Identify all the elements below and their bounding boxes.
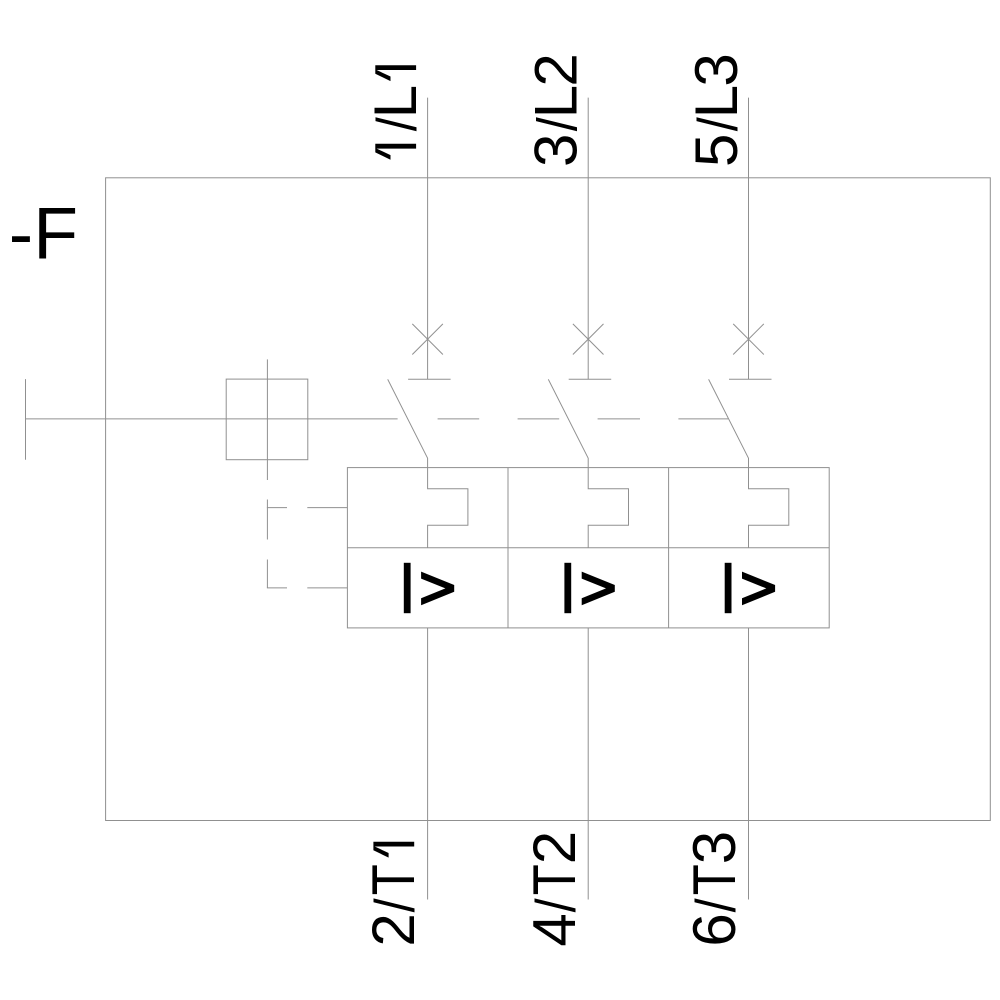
svg-text:T: T xyxy=(681,864,748,895)
svg-text:L: L xyxy=(683,85,750,118)
svg-text:-F: -F xyxy=(9,192,78,274)
svg-text:T: T xyxy=(521,864,588,895)
svg-text:/: / xyxy=(686,898,748,912)
svg-text:3: 3 xyxy=(681,831,748,864)
svg-text:/: / xyxy=(365,898,427,912)
svg-text:3: 3 xyxy=(523,134,590,167)
svg-text:5: 5 xyxy=(683,134,750,167)
svg-text:3: 3 xyxy=(683,53,750,86)
svg-text:4: 4 xyxy=(521,913,588,946)
svg-text:2: 2 xyxy=(523,53,590,86)
svg-text:L: L xyxy=(362,85,429,118)
svg-text:6: 6 xyxy=(681,913,748,946)
svg-text:/: / xyxy=(526,898,588,912)
svg-text:2: 2 xyxy=(360,913,427,946)
svg-text:2: 2 xyxy=(521,831,588,864)
svg-text:L: L xyxy=(523,85,590,118)
svg-text:T: T xyxy=(360,864,427,895)
